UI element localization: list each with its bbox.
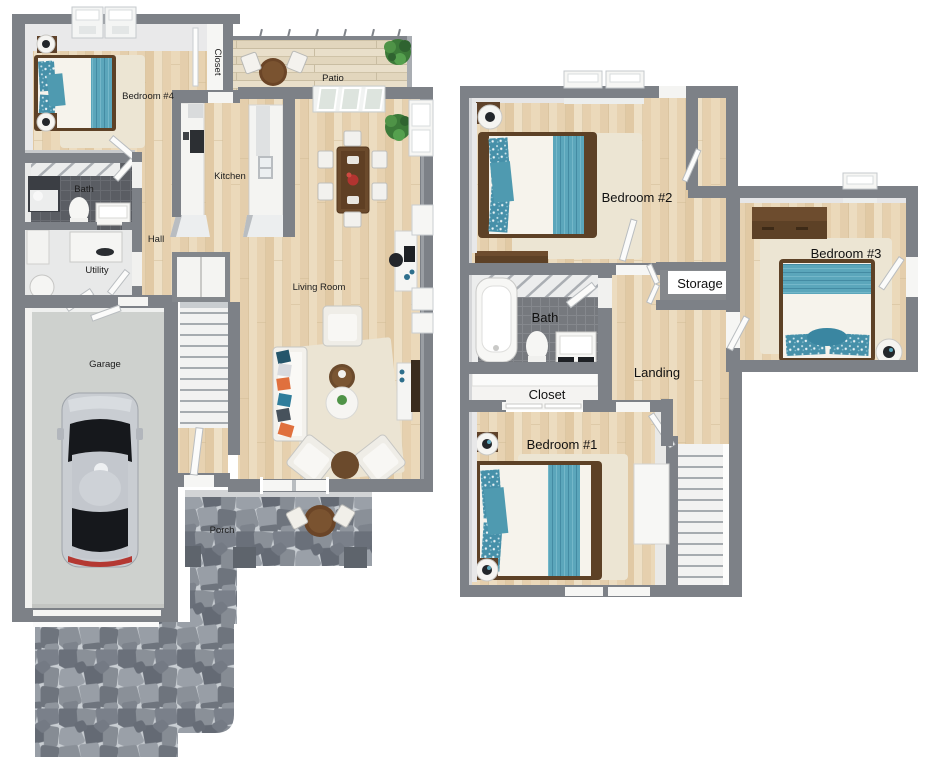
svg-text:Hall: Hall — [148, 234, 164, 245]
svg-text:Utility: Utility — [85, 265, 108, 276]
svg-text:Patio: Patio — [322, 73, 344, 84]
svg-text:Bath: Bath — [532, 310, 559, 325]
svg-text:Landing: Landing — [634, 365, 680, 380]
svg-text:Garage: Garage — [89, 359, 121, 370]
svg-text:Closet: Closet — [212, 49, 223, 76]
svg-text:Bedroom #2: Bedroom #2 — [602, 190, 673, 205]
svg-text:Bath: Bath — [74, 184, 94, 195]
svg-text:Closet: Closet — [529, 387, 566, 402]
svg-text:Storage: Storage — [677, 276, 723, 291]
svg-text:Porch: Porch — [210, 525, 235, 536]
svg-text:Bedroom #1: Bedroom #1 — [527, 437, 598, 452]
svg-text:Kitchen: Kitchen — [214, 171, 246, 182]
svg-text:Living Room: Living Room — [293, 282, 346, 293]
svg-text:Bedroom #4: Bedroom #4 — [122, 91, 174, 102]
svg-text:Bedroom #3: Bedroom #3 — [811, 246, 882, 261]
